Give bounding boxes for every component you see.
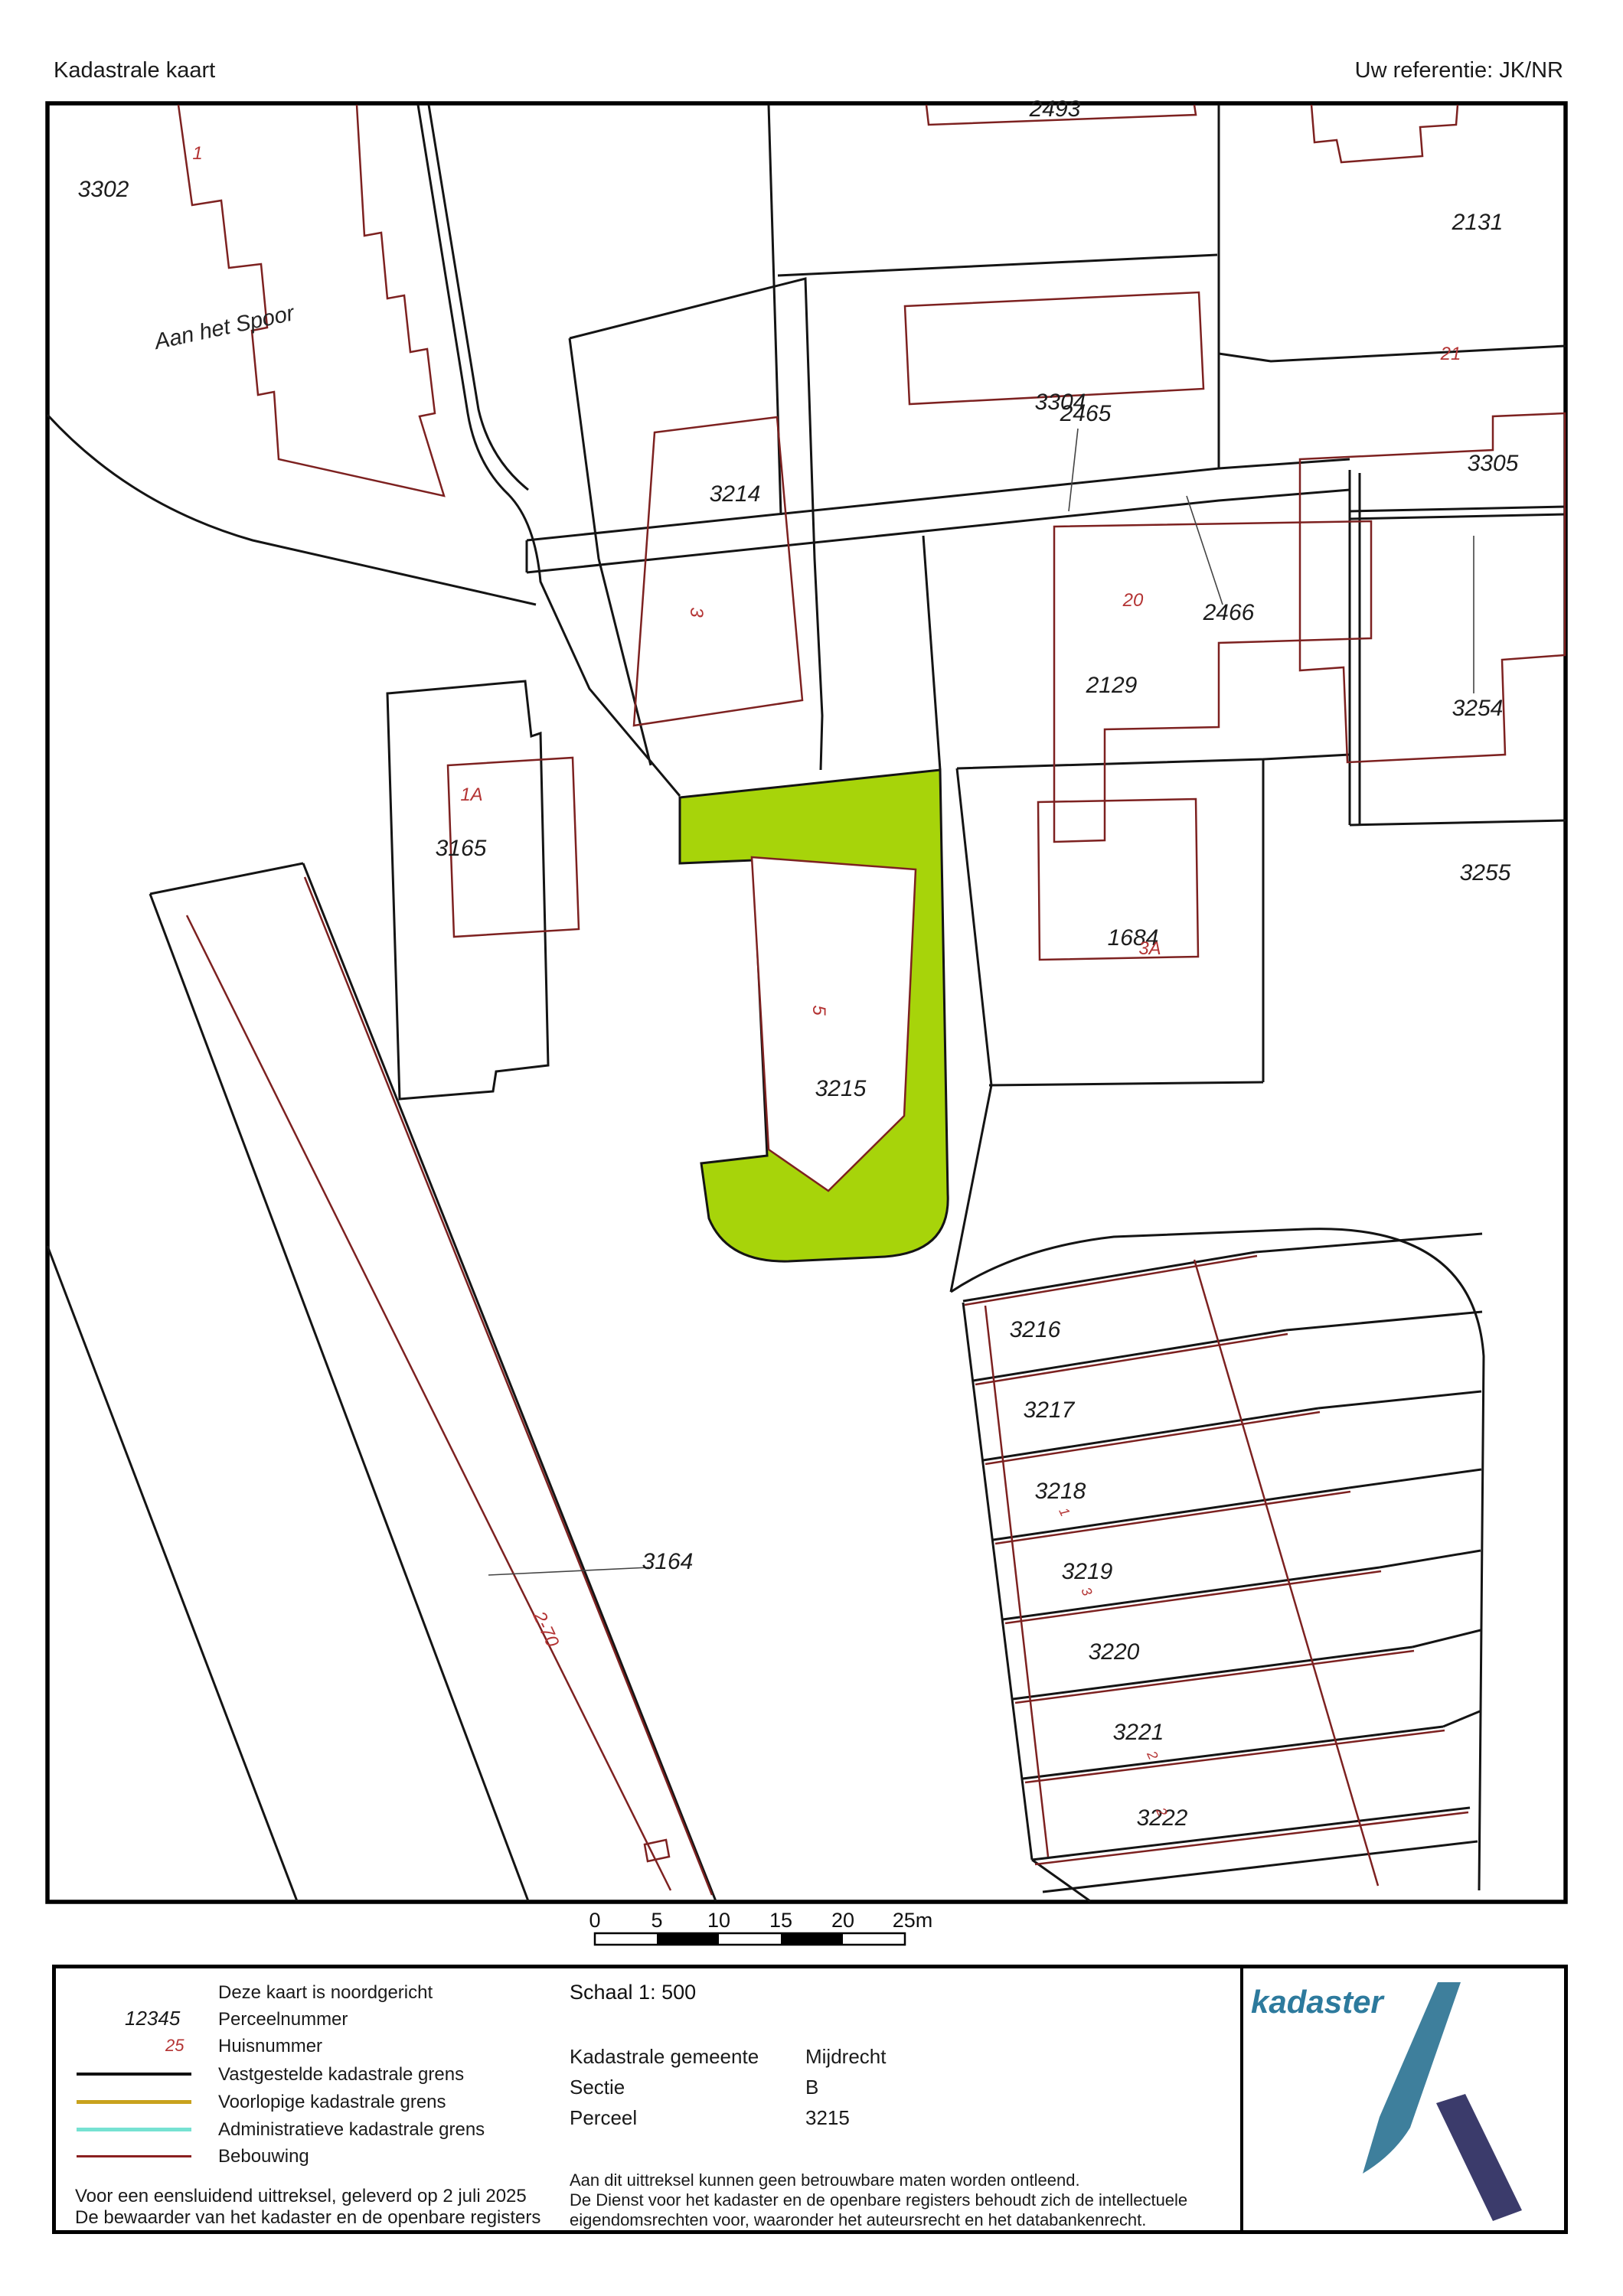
- north-note: Deze kaart is noordgericht: [218, 1982, 433, 2004]
- cadastral-extract-page: Kadastrale kaart Uw referentie: JK/NR: [0, 0, 1623, 2296]
- disclaimer-line-1: Aan dit uittreksel kunnen geen betrouwba…: [570, 2170, 1080, 2190]
- field-label-sectie: Sectie: [570, 2076, 625, 2099]
- disclaimer-line-2: De Dienst voor het kadaster en de openba…: [570, 2190, 1187, 2210]
- parcel-label-3219: 3219: [1062, 1559, 1113, 1584]
- parcel-label-3217: 3217: [1024, 1397, 1076, 1423]
- scale-text: Schaal 1: 500: [570, 1981, 696, 2004]
- logo-blade-navy: [1436, 2094, 1522, 2221]
- legend-sample-parcelnumber: 12345: [125, 2007, 180, 2030]
- house-number-1: 1: [192, 143, 202, 164]
- parcel-label-2129: 2129: [1086, 673, 1138, 698]
- parcel-label-2131: 2131: [1452, 210, 1504, 235]
- parcel-label-2466: 2466: [1203, 600, 1255, 625]
- legend-label-housenumber: Huisnummer: [218, 2036, 322, 2057]
- kadaster-logo-icon: [1256, 1975, 1562, 2231]
- disclaimer-line-3: eigendomsrechten voor, waaronder het aut…: [570, 2210, 1146, 2230]
- house-number-21: 21: [1440, 344, 1461, 364]
- legend-line-administrative: [77, 2128, 191, 2131]
- scale-tick: 0: [589, 1909, 600, 1932]
- legend-line-buildings: [77, 2155, 191, 2157]
- scale-tick: 10: [707, 1909, 730, 1932]
- parcel-label-3220: 3220: [1089, 1639, 1140, 1665]
- scale-tick: 25m: [893, 1909, 933, 1932]
- legend-label-parcelnumber: Perceelnummer: [218, 2009, 348, 2030]
- parcel-label-3254: 3254: [1452, 696, 1504, 721]
- house-number-1A: 1A: [460, 784, 482, 805]
- scale-bar: 0 5 10 15 20 25m: [589, 1909, 932, 1945]
- issued-line-1: Voor een eensluidend uittreksel, gelever…: [75, 2186, 527, 2207]
- field-value-gemeente: Mijdrecht: [805, 2045, 886, 2069]
- parcel-label-3302: 3302: [78, 177, 129, 202]
- legend-label-buildings: Bebouwing: [218, 2146, 309, 2167]
- parcel-label-3214: 3214: [710, 481, 761, 507]
- legend-label-administrative: Administratieve kadastrale grens: [218, 2119, 485, 2141]
- legend-label-established: Vastgestelde kadastrale grens: [218, 2064, 464, 2086]
- parcel-label-3164: 3164: [642, 1549, 694, 1574]
- cadastral-map: 3302321424933304246521313305246621293254…: [0, 0, 1623, 2296]
- parcel-label-3305: 3305: [1468, 451, 1519, 476]
- field-label-perceel: Perceel: [570, 2106, 637, 2130]
- scale-tick: 5: [651, 1909, 662, 1932]
- legend-label-provisional: Voorlopige kadastrale grens: [218, 2092, 446, 2113]
- parcel-label-3218: 3218: [1035, 1479, 1086, 1504]
- issued-line-2: De bewaarder van het kadaster en de open…: [75, 2207, 540, 2229]
- logo-blade-teal: [1363, 1982, 1461, 2174]
- parcel-label-3255: 3255: [1460, 860, 1511, 885]
- house-number-20: 20: [1122, 590, 1144, 611]
- house-number-3A: 3A: [1138, 938, 1161, 959]
- scale-tick: 15: [769, 1909, 792, 1932]
- parcel-label-3165: 3165: [436, 836, 487, 861]
- legend-sample-housenumber: 25: [165, 2036, 184, 2056]
- house-number-5: 5: [808, 1005, 829, 1016]
- house-number-3: 3: [686, 607, 707, 618]
- scale-tick: 20: [831, 1909, 854, 1932]
- parcel-label-2493: 2493: [1029, 96, 1081, 122]
- legend-line-provisional: [77, 2100, 191, 2104]
- footer-divider: [1240, 1967, 1243, 2232]
- field-value-sectie: B: [805, 2076, 818, 2099]
- parcel-label-2465: 2465: [1060, 401, 1112, 426]
- parcel-label-3216: 3216: [1010, 1317, 1061, 1342]
- parcel-label-3215: 3215: [815, 1076, 867, 1101]
- parcel-label-3221: 3221: [1113, 1720, 1164, 1745]
- legend-line-established: [77, 2073, 191, 2076]
- field-label-gemeente: Kadastrale gemeente: [570, 2045, 759, 2069]
- field-value-perceel: 3215: [805, 2106, 850, 2130]
